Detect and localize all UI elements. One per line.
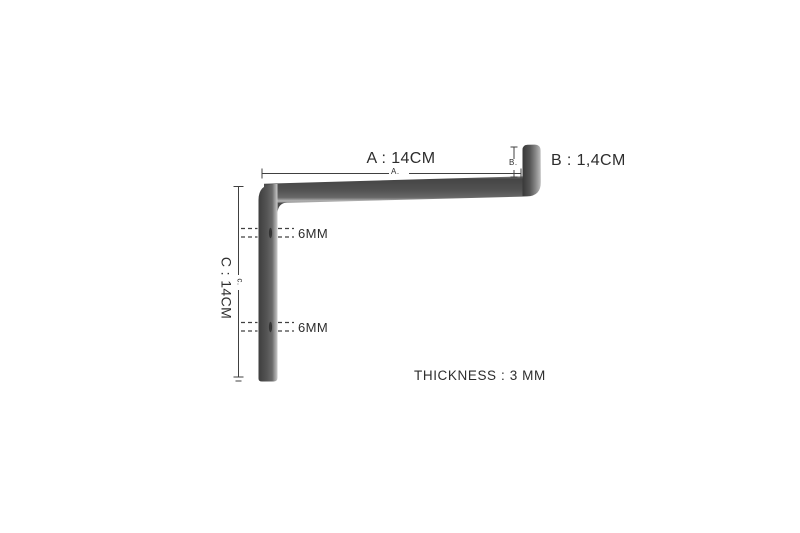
- dim-c-line-label: c.: [235, 278, 244, 285]
- thickness-label: THICKNESS : 3 MM: [414, 369, 546, 384]
- hole-bottom-label: 6MM: [298, 321, 328, 335]
- dim-a-label: A : 14CM: [336, 150, 466, 168]
- product-dimension-diagram: A : 14CM A. B : 1,4CM B. C : 14CM c. 6MM…: [0, 0, 800, 533]
- dim-b-line-label: B.: [509, 159, 518, 168]
- dim-c-label: C : 14CM: [218, 257, 233, 319]
- bracket-vertical-arm: [259, 184, 278, 382]
- bracket-horizontal-arm: [264, 176, 523, 203]
- dim-b-label: B : 1,4CM: [551, 152, 626, 170]
- hole-top-label: 6MM: [298, 227, 328, 241]
- hole-slit-bottom: [269, 322, 272, 332]
- bracket-diagram-svg: [0, 0, 800, 533]
- dim-a-line-label: A.: [391, 168, 400, 177]
- hole-slit-top: [269, 228, 272, 238]
- bracket-hook: [523, 145, 541, 197]
- bracket-inner-corner: [278, 202, 287, 212]
